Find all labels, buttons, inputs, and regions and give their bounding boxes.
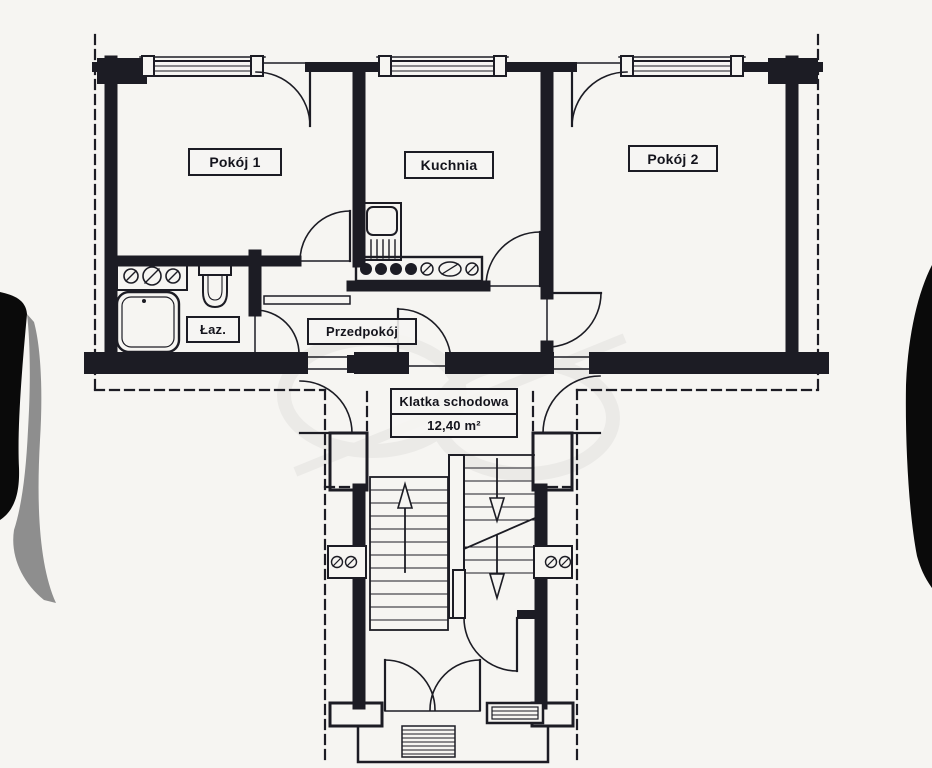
window-icon — [619, 56, 745, 76]
stairs-up-arrow-icon — [398, 484, 412, 572]
staircase-label: Klatka schodowa — [392, 390, 516, 415]
balcony-door-icon — [256, 72, 310, 126]
floorplan-drawing — [0, 0, 932, 768]
stairwell-window-icon — [534, 546, 572, 578]
room-label-klatka-schodowa: Klatka schodowa 12,40 m² — [390, 388, 518, 438]
staircase — [328, 433, 573, 762]
interior-walls — [111, 72, 547, 355]
room-label-przedpokoj: Przedpokój — [307, 318, 417, 345]
hall-closet — [264, 296, 350, 304]
door-arc-icon-pokoj1 — [300, 211, 350, 261]
bathtub-icon — [117, 292, 179, 352]
basement-window-icon — [487, 703, 543, 723]
door-arc-icon-understair — [464, 618, 517, 671]
wall-pier — [347, 355, 365, 373]
room-label-lazienka: Łaz. — [186, 316, 240, 343]
toilet-icon — [199, 262, 231, 307]
doormat-icon — [402, 726, 455, 757]
balcony-door-icon — [572, 72, 627, 126]
floorplan-page: Pokój 1 Kuchnia Pokój 2 Łaz. Przedpokój … — [0, 0, 932, 768]
staircase-area-value: 12,40 m² — [392, 415, 516, 436]
doors — [255, 72, 627, 433]
room-label-pokoj1: Pokój 1 — [188, 148, 282, 176]
room-label-kuchnia: Kuchnia — [404, 151, 494, 179]
kitchen-fixtures — [356, 203, 482, 281]
room-label-pokoj2: Pokój 2 — [628, 145, 718, 172]
photo-edge-left — [0, 292, 27, 520]
door-arc-icon-pokoj2 — [547, 293, 601, 347]
stairwell-window-icon — [328, 546, 366, 578]
porch-outline — [358, 726, 548, 762]
door-arc-icon-lazienka — [255, 310, 299, 354]
photo-edge-right — [906, 265, 932, 588]
window-icon — [140, 56, 265, 76]
stair-break-line — [464, 518, 535, 549]
sink-icon — [439, 262, 461, 276]
window-icon — [377, 56, 508, 76]
entrance-double-door-icon — [385, 660, 480, 711]
stove-icon — [363, 203, 401, 260]
stairs-down-arrow-icon — [490, 536, 504, 598]
door-arc-icon-kuchnia — [486, 232, 540, 286]
